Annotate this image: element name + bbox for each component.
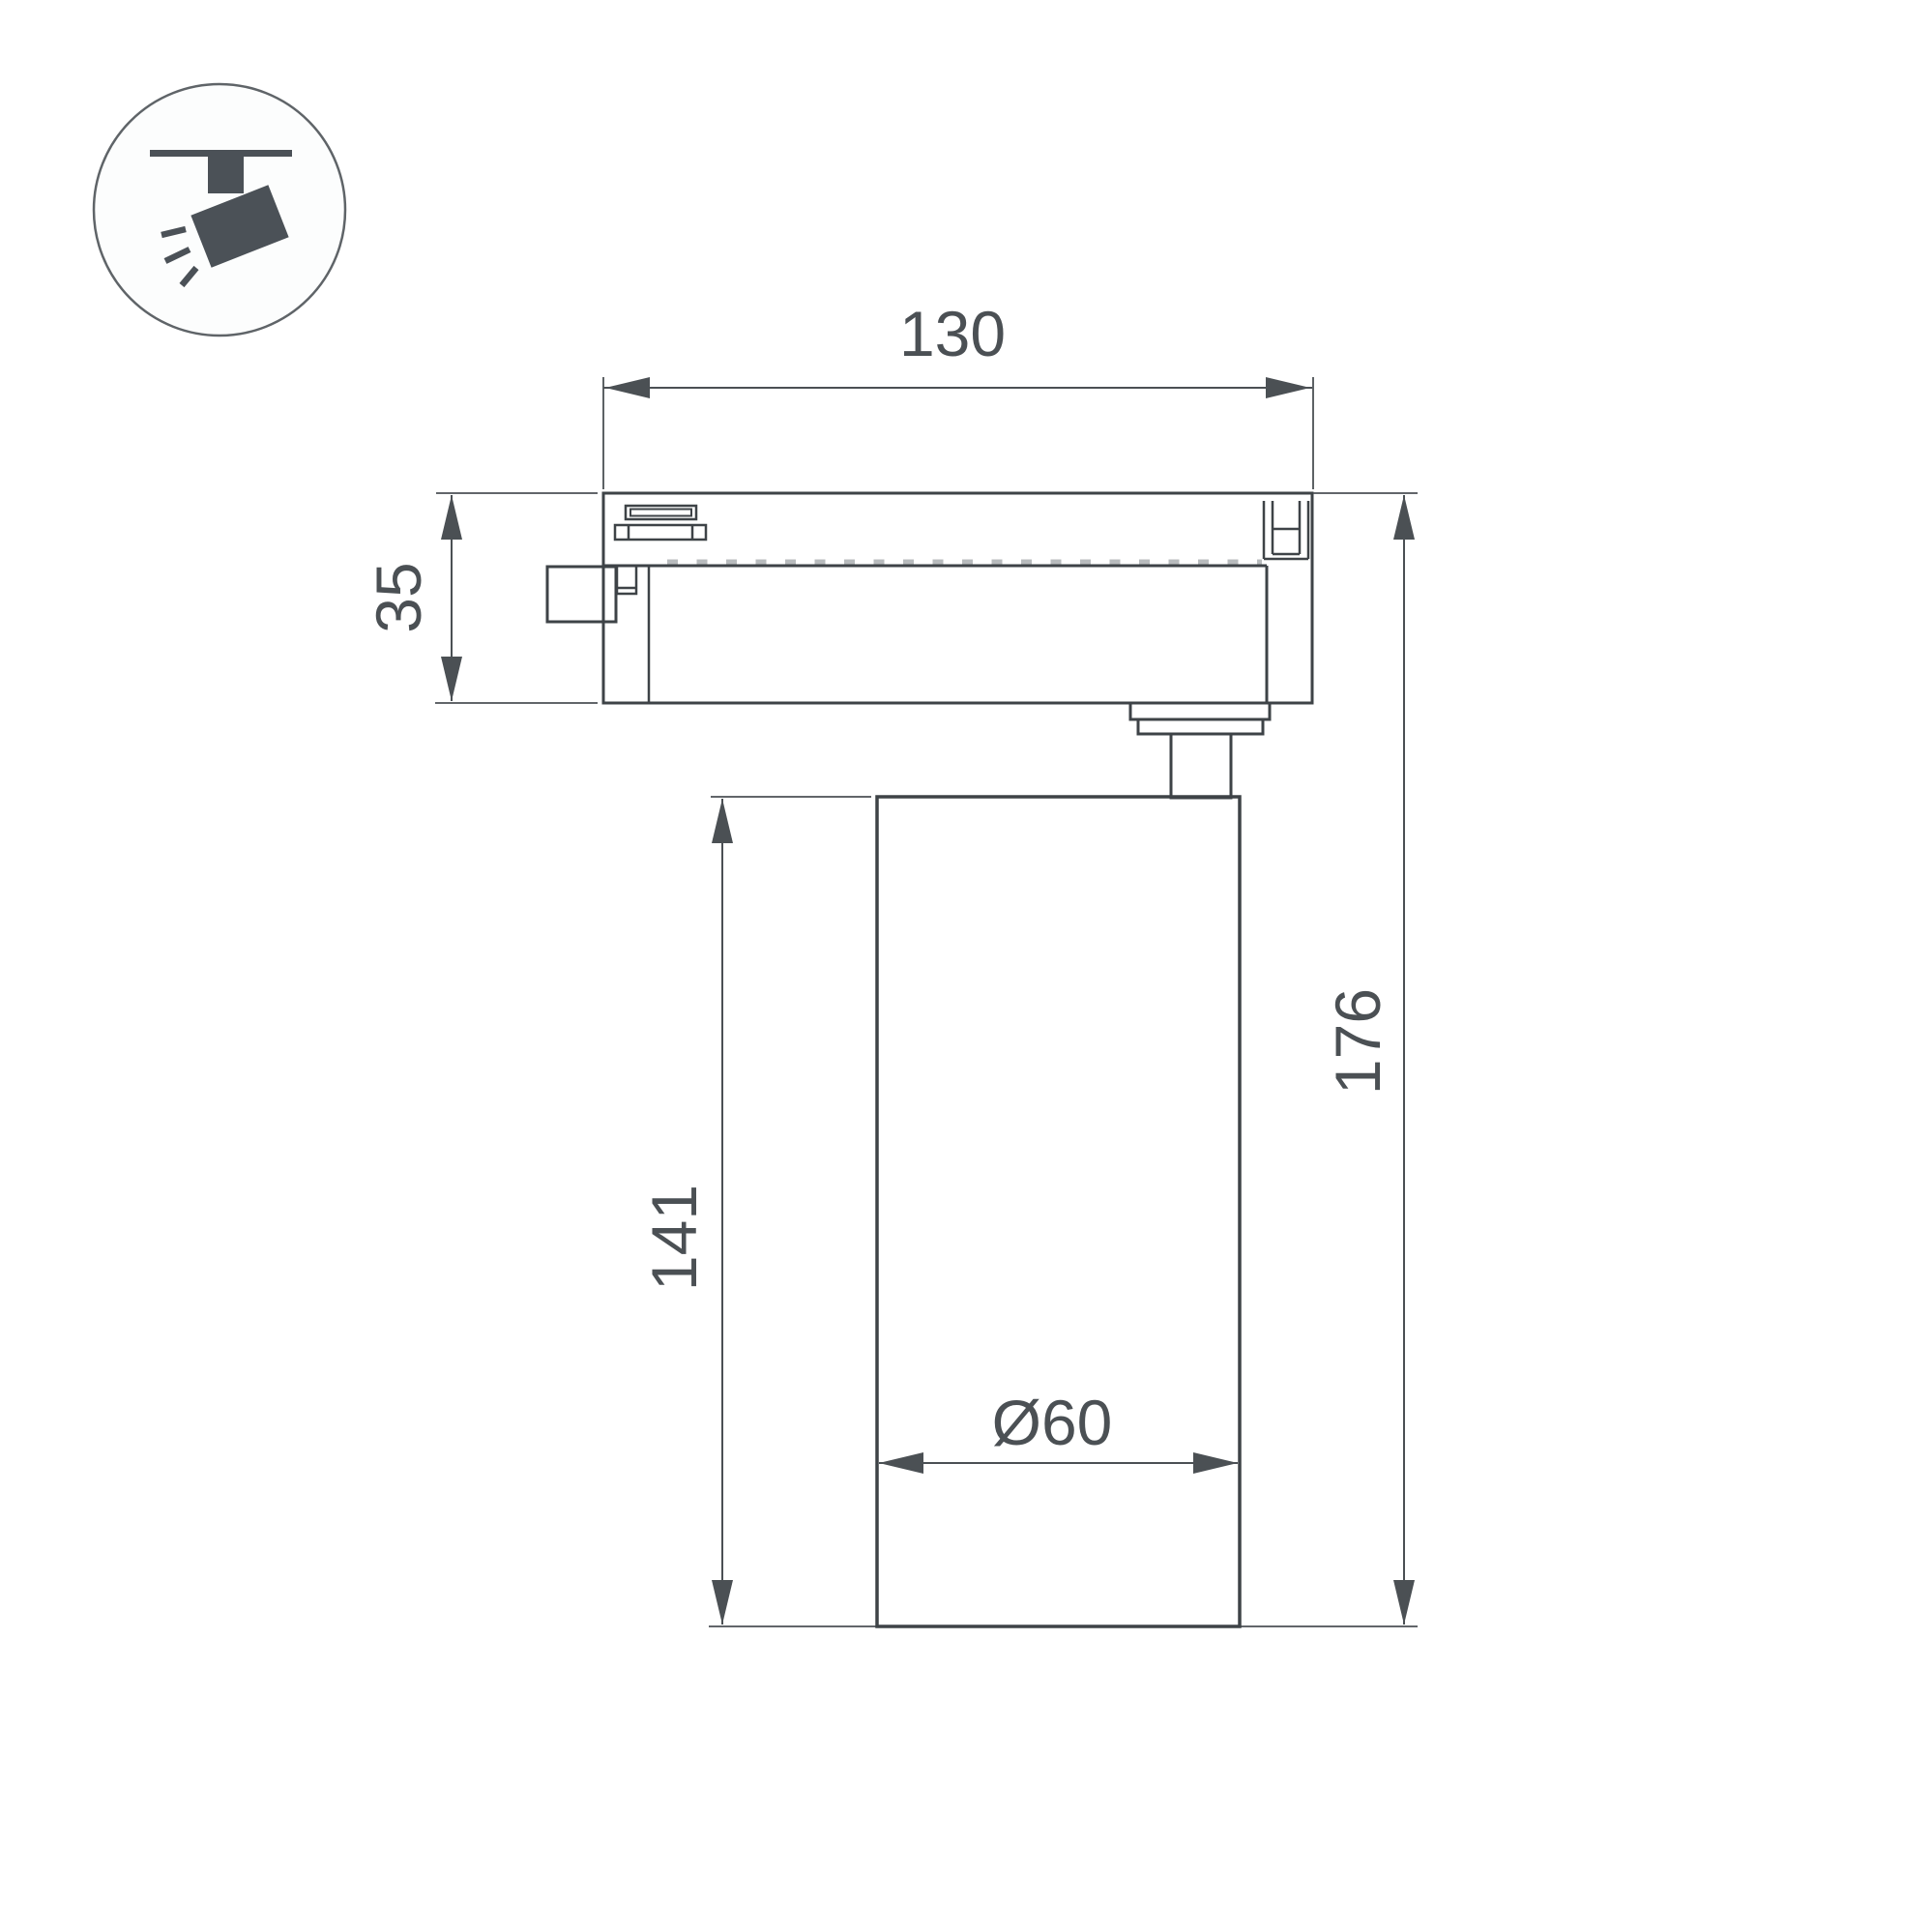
dimension-body-height: 141 — [638, 797, 871, 1625]
lamp-body — [877, 797, 1240, 1626]
lock-clip — [1264, 501, 1308, 559]
arrowhead-left — [879, 1452, 923, 1474]
dim-label-adapter-height: 35 — [363, 562, 434, 632]
dim-label-body-diameter: Ø60 — [992, 1387, 1113, 1458]
dimension-body-diameter: Ø60 — [879, 1387, 1238, 1474]
arrowhead-left — [605, 377, 650, 398]
adapter-outline — [603, 493, 1312, 703]
pivot-yoke — [1130, 703, 1270, 798]
contact-clip-outer — [626, 506, 696, 519]
arrowhead-down — [1393, 1580, 1415, 1625]
arrowhead-right — [1193, 1452, 1238, 1474]
arrowhead-up — [1393, 495, 1415, 540]
yoke-plate-upper — [1130, 703, 1270, 719]
dim-label-track-width: 130 — [899, 298, 1006, 369]
arrowhead-down — [712, 1580, 733, 1625]
technical-drawing-canvas: 130 35 141 176 Ø60 — [0, 0, 1932, 1932]
yoke-plate-lower — [1138, 719, 1263, 734]
contact-clip-inner — [630, 510, 691, 516]
dimension-track-width: 130 — [603, 298, 1313, 489]
dim-label-body-height: 141 — [638, 1185, 710, 1291]
track-spotlight-icon — [94, 84, 345, 336]
track-stem-glyph — [208, 153, 244, 193]
arrowhead-up — [441, 495, 462, 540]
selector-notch — [617, 567, 636, 594]
arrowhead-up — [712, 799, 733, 843]
dim-label-total-height: 176 — [1322, 988, 1393, 1095]
phase-selector-box — [547, 567, 616, 622]
arrowhead-right — [1266, 377, 1310, 398]
track-adapter — [547, 493, 1312, 703]
dimension-total-height: 176 — [1313, 493, 1418, 1625]
yoke-stem — [1171, 734, 1231, 798]
dimension-adapter-height: 35 — [363, 493, 598, 703]
arrowhead-down — [441, 657, 462, 701]
